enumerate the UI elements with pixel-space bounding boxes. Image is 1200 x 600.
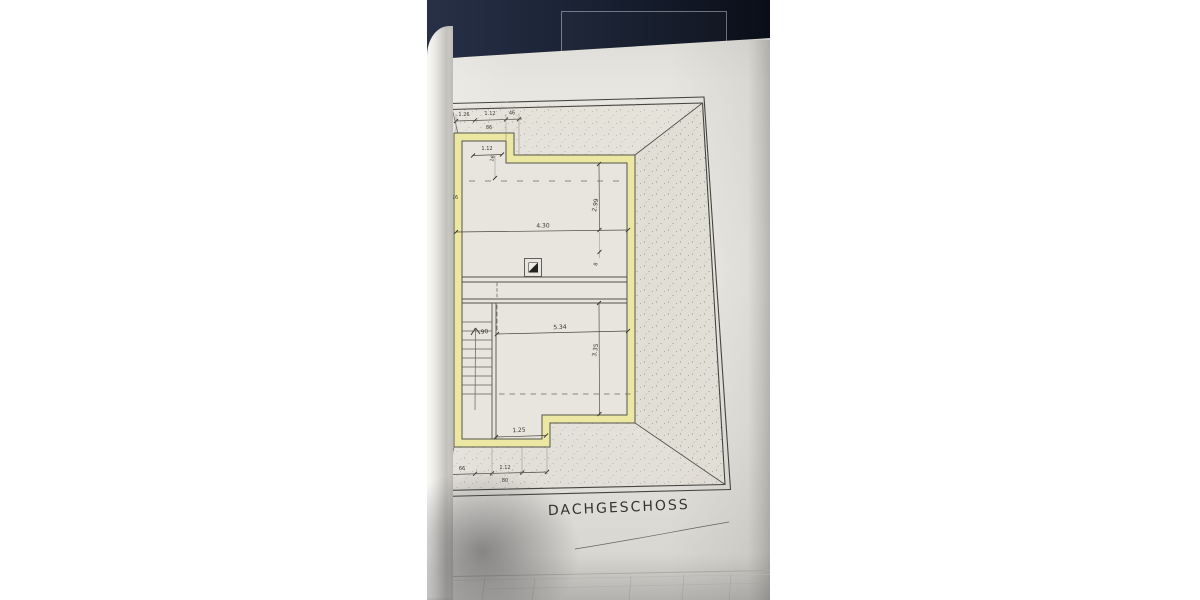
dim-top-seg1: 1.26	[458, 112, 469, 118]
dim-stair-width: 90	[480, 328, 489, 336]
dim-top-seg2: 1.12	[484, 111, 495, 117]
dim-niche-width: 1.12	[481, 146, 492, 152]
dim-top-seg3: 46	[509, 111, 515, 117]
highlighted-walls	[454, 133, 635, 447]
dim-lower-left-width: 1.25	[512, 427, 526, 434]
dim-top-total: 86	[486, 125, 492, 131]
dim-lower-room-width: 5.34	[553, 324, 567, 331]
photographer-shadow	[427, 469, 580, 600]
screenshot-canvas: 90 1.26 1.12 46 86 1.12 16 26	[0, 0, 1200, 600]
dim-upper-room-width: 4.30	[536, 222, 550, 229]
floorplan-photo: 90 1.26 1.12 46 86 1.12 16 26	[427, 0, 770, 600]
